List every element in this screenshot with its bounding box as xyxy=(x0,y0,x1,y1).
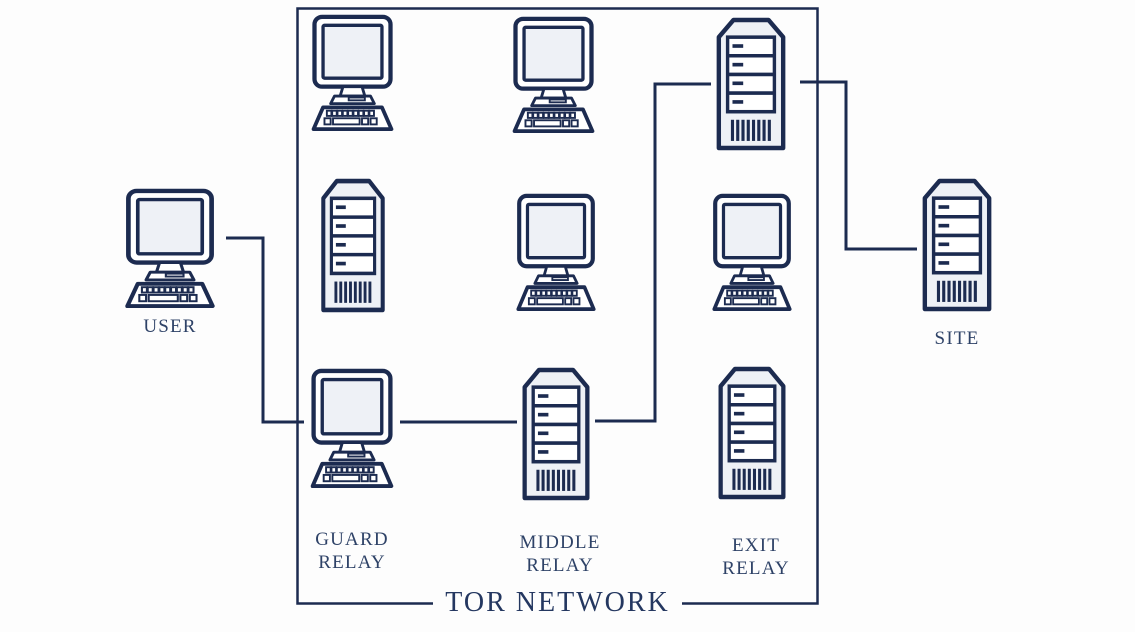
connection-user-to-guard xyxy=(226,238,304,422)
network-box-title: TOR NETWORK xyxy=(433,586,681,620)
desktop-computer-icon-mid-right xyxy=(714,196,789,309)
exit-relay-label: EXIT RELAY xyxy=(704,535,808,581)
server-tower-icon-bottom-right xyxy=(721,369,784,497)
guard-relay-label: GUARD RELAY xyxy=(300,529,404,575)
guard-relay-label-line2: RELAY xyxy=(300,552,404,575)
user-label: USER xyxy=(118,316,222,339)
guard-relay-label-line1: GUARD xyxy=(300,529,404,552)
user-computer-icon xyxy=(127,191,212,306)
tor-network-diagram: USER SITE GUARD RELAY MIDDLE RELAY EXIT … xyxy=(0,0,1135,632)
network-box-title-wrap: TOR NETWORK xyxy=(297,586,818,620)
desktop-computer-icon-top-left xyxy=(314,17,392,129)
middle-relay-label-line2: RELAY xyxy=(508,555,612,578)
server-tower-icon-mid-left xyxy=(323,181,382,310)
site-server-icon xyxy=(925,181,989,309)
exit-relay-label-line2: RELAY xyxy=(704,558,808,581)
server-tower-icon-middle-relay xyxy=(525,370,588,498)
exit-relay-label-line1: EXIT xyxy=(704,535,808,558)
middle-relay-label: MIDDLE RELAY xyxy=(508,532,612,578)
middle-relay-label-line1: MIDDLE xyxy=(508,532,612,555)
connection-middle-to-exit xyxy=(595,84,711,421)
desktop-computer-icon-top-center xyxy=(515,19,593,131)
site-label: SITE xyxy=(918,328,996,351)
server-tower-icon-exit-relay xyxy=(719,20,783,148)
desktop-computer-icon-guard-relay xyxy=(313,371,392,486)
desktop-computer-icon-center xyxy=(518,196,593,309)
